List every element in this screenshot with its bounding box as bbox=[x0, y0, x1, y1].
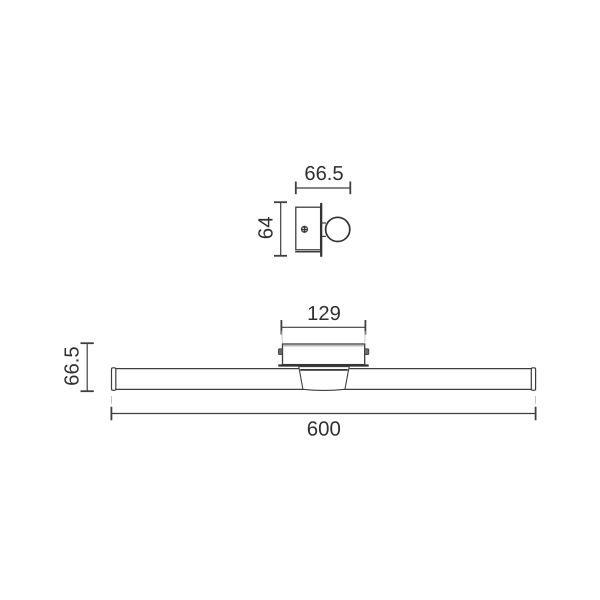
svg-text:64: 64 bbox=[255, 216, 278, 239]
svg-text:600: 600 bbox=[307, 418, 341, 440]
svg-text:66.5: 66.5 bbox=[62, 346, 84, 385]
svg-text:66.5: 66.5 bbox=[304, 163, 343, 185]
svg-text:129: 129 bbox=[307, 303, 341, 325]
